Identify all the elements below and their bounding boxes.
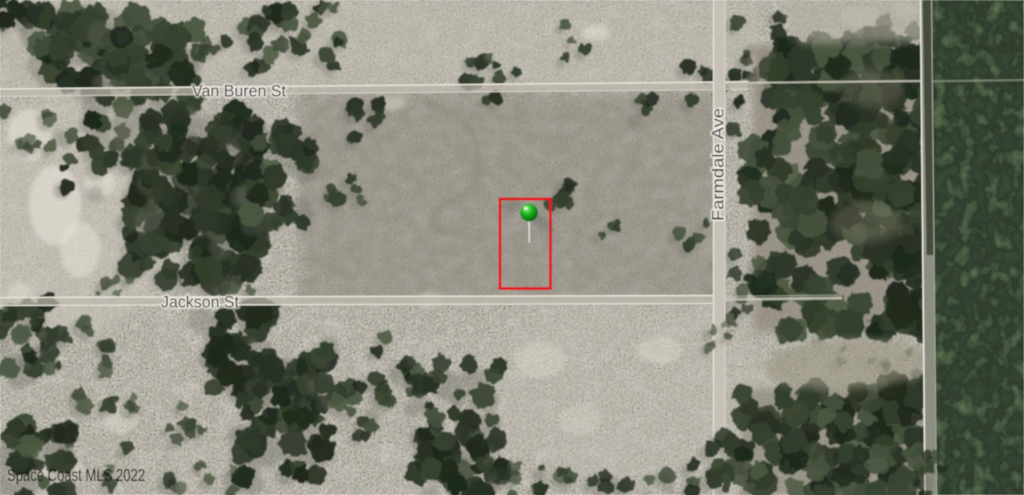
svg-text:Van Buren St: Van Buren St (192, 83, 286, 101)
svg-text:Space Coast MLS 2022: Space Coast MLS 2022 (7, 465, 145, 485)
svg-text:Farmdale Ave: Farmdale Ave (710, 108, 728, 221)
svg-text:Jackson St: Jackson St (161, 294, 239, 312)
